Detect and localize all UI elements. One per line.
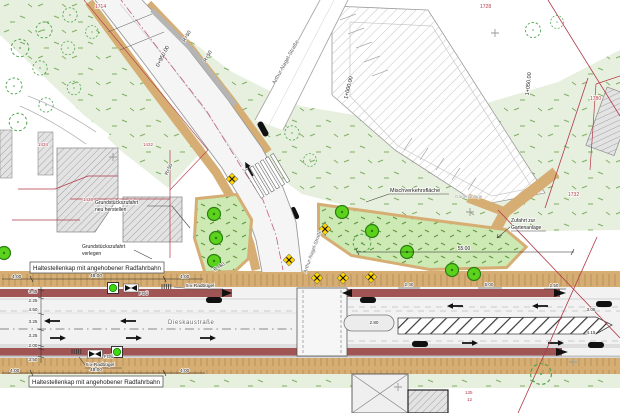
parcel-135: 135 <box>465 390 473 395</box>
dim-305: 3.05 <box>587 307 596 312</box>
stop-cap-callout-top: Haltestellenkap mit angehobener Radfahrb… <box>30 262 164 273</box>
stop-cap-label-top: Haltestellenkap mit angehobener Radfahrb… <box>33 266 161 272</box>
driveway-new-label-1: Grundstückszufahrt <box>95 200 139 206</box>
dim-cross-left-3: 3.25 <box>29 319 38 324</box>
driveway-relocate-label-2: verlegen <box>82 251 101 257</box>
parcel-1438: 1438 <box>83 197 94 202</box>
parcel-1728: 1728 <box>480 4 491 10</box>
tree-icon <box>468 268 481 281</box>
dim-415: 4.15 <box>587 330 596 335</box>
tree-icon <box>208 208 221 221</box>
dim-cross-left-1: 2.25 <box>29 298 38 303</box>
street-name-main: Dieskaustraße <box>168 320 215 326</box>
parcel-12: 12 <box>467 397 473 402</box>
mixed-traffic-label: Mischverkehrsfläche <box>390 188 440 194</box>
parcel-1432: 1432 <box>143 142 154 147</box>
parcel-1732: 1732 <box>568 192 579 198</box>
bus-icon <box>588 342 604 348</box>
parcel-1780: 1780 <box>590 96 601 102</box>
dim-top-left: 4.00 <box>12 274 22 280</box>
dim-top-mid: 48.00 <box>90 273 102 279</box>
cycle-track-south <box>0 348 562 356</box>
site-plan: Haltestellenkap mit angehobener Radfahrb… <box>0 0 620 413</box>
signal-icon <box>108 283 119 294</box>
driveway-new-label-2: neu herstellen <box>95 207 127 213</box>
tree-icon <box>446 264 459 277</box>
crosswalk-sign-icon <box>124 284 139 292</box>
dim-cross-left-0: 3.45 <box>29 289 38 294</box>
bus-icon <box>596 301 612 307</box>
parcel-1714: 1714 <box>95 4 106 10</box>
bus-icon <box>206 297 222 303</box>
dim-cross-left-4: 3.25 <box>29 333 38 338</box>
dim-bottom-left: 4.00 <box>10 368 20 374</box>
crosswalk-label-top: FGÜ <box>139 290 149 296</box>
garden-access-label-2: Gartenanlage <box>511 225 542 231</box>
parcel-1434: 1434 <box>38 142 49 147</box>
dim-cross-left-2: 4.50 <box>29 307 38 312</box>
crosswalk-sign-icon <box>88 350 103 358</box>
dim-280: 2.80 <box>370 320 379 325</box>
dim-55: 55.00 <box>458 246 471 252</box>
dim-top-right: 4.00 <box>180 274 190 280</box>
dim-bottom-right: 4.00 <box>180 368 190 374</box>
bus-icon <box>412 341 428 347</box>
garden-area-label: Gartenanlage <box>455 194 483 199</box>
stop-cap-label-bottom: Haltestellenkap mit angehobener Radfahrb… <box>32 380 160 386</box>
dim-240: 2.40 <box>405 282 414 287</box>
dim-5: 5.00 <box>485 282 494 287</box>
tree-icon <box>0 247 11 260</box>
tree-icon <box>210 232 223 245</box>
median-hatched-island <box>398 317 612 334</box>
bike-racks-label-top: 5 x Radbügel <box>186 283 214 289</box>
bus-icon <box>360 297 376 303</box>
garden-access-label-1: Zufahrt zur <box>511 218 536 224</box>
junction-plateau <box>297 288 347 356</box>
dim-bottom-mid: 48.00 <box>90 367 102 373</box>
dim-250: 2.50 <box>550 283 559 288</box>
dim-cross-left-6: 3.50 <box>29 357 38 362</box>
driveway-relocate-label-1: Grundstückszufahrt <box>82 244 126 250</box>
stop-cap-callout-bottom: Haltestellenkap mit angehobener Radfahrb… <box>29 376 163 387</box>
crosswalk-label-bottom: FGÜ <box>104 353 114 359</box>
dim-cross-left-5: 2.00 <box>29 343 38 348</box>
site-plan-viewport: Haltestellenkap mit angehobener Radfahrb… <box>0 0 620 413</box>
tree-icon <box>336 206 349 219</box>
